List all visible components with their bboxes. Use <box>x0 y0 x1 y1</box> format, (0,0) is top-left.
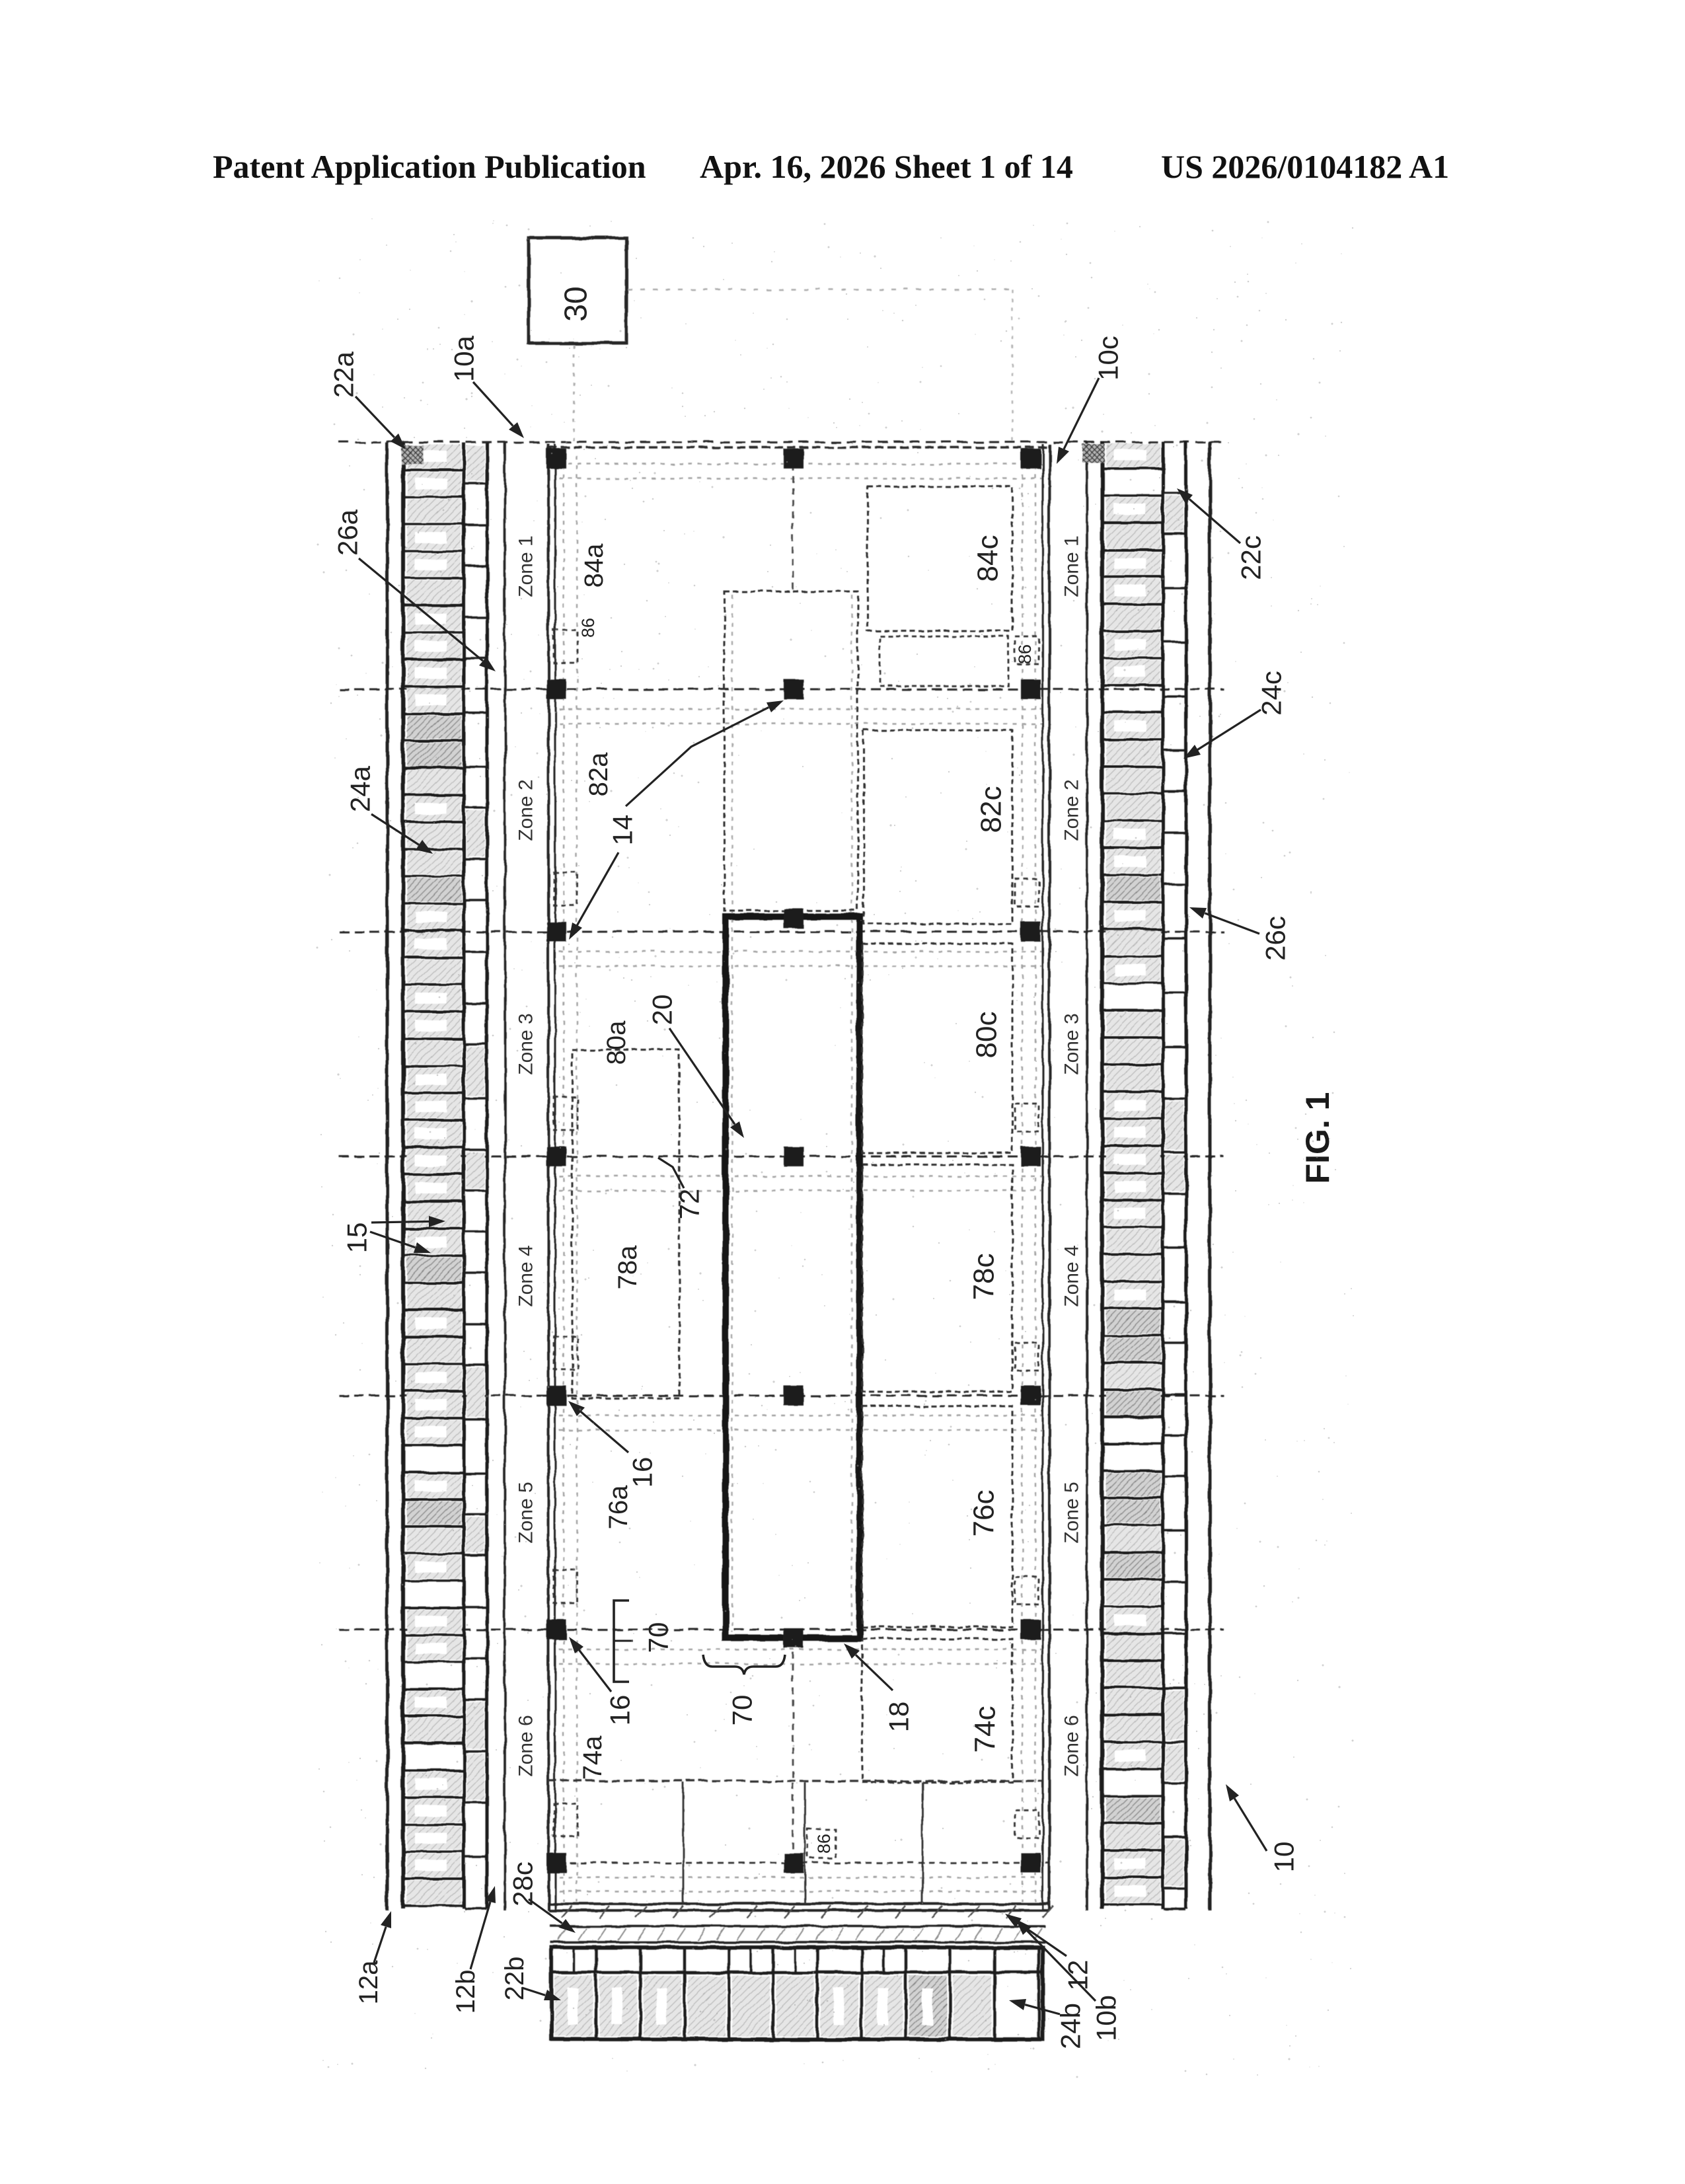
svg-text:Zone 6: Zone 6 <box>515 1715 537 1776</box>
svg-text:78a: 78a <box>613 1245 642 1289</box>
svg-text:80c: 80c <box>971 1012 1003 1059</box>
svg-text:84a: 84a <box>580 543 609 587</box>
svg-text:80a: 80a <box>602 1020 631 1065</box>
svg-text:14: 14 <box>607 815 638 846</box>
svg-text:84c: 84c <box>972 535 1004 582</box>
svg-text:10b: 10b <box>1091 1995 1122 2041</box>
svg-text:Zone 1: Zone 1 <box>515 535 537 597</box>
svg-text:26a: 26a <box>332 509 363 556</box>
svg-text:12a: 12a <box>354 1960 383 2004</box>
svg-text:76a: 76a <box>604 1485 633 1529</box>
svg-text:Zone 1: Zone 1 <box>1061 535 1083 597</box>
svg-text:74a: 74a <box>578 1735 607 1780</box>
svg-text:18: 18 <box>883 1702 915 1733</box>
svg-text:30: 30 <box>559 286 594 321</box>
svg-text:15: 15 <box>342 1223 373 1254</box>
svg-text:24b: 24b <box>1055 2003 1086 2049</box>
svg-text:86: 86 <box>814 1834 834 1854</box>
svg-text:Zone 5: Zone 5 <box>515 1482 537 1543</box>
svg-text:74c: 74c <box>969 1706 1002 1753</box>
svg-text:86: 86 <box>1015 644 1035 664</box>
svg-text:22b: 22b <box>500 1957 529 2001</box>
svg-text:70: 70 <box>643 1622 674 1653</box>
svg-text:26c: 26c <box>1260 916 1291 961</box>
svg-text:16: 16 <box>627 1457 658 1488</box>
svg-text:70: 70 <box>727 1695 758 1726</box>
svg-text:FIG. 1: FIG. 1 <box>1299 1092 1336 1184</box>
svg-text:24c: 24c <box>1256 671 1287 716</box>
svg-text:86: 86 <box>578 618 598 638</box>
svg-text:10a: 10a <box>449 335 480 382</box>
svg-text:10: 10 <box>1269 1842 1300 1873</box>
svg-text:12: 12 <box>1063 1960 1094 1991</box>
svg-text:Zone 3: Zone 3 <box>515 1013 537 1074</box>
svg-text:24a: 24a <box>345 765 376 812</box>
svg-text:Zone 4: Zone 4 <box>1061 1245 1083 1306</box>
svg-text:Zone 5: Zone 5 <box>1061 1482 1083 1543</box>
svg-text:Patent Application Publication: Patent Application Publication <box>213 148 646 185</box>
svg-text:20: 20 <box>647 995 678 1026</box>
svg-text:Zone 3: Zone 3 <box>1061 1013 1083 1074</box>
svg-text:US 2026/0104182 A1: US 2026/0104182 A1 <box>1161 148 1449 185</box>
svg-text:82c: 82c <box>975 786 1008 833</box>
svg-text:72: 72 <box>674 1189 705 1220</box>
svg-text:82a: 82a <box>584 752 613 796</box>
svg-text:22c: 22c <box>1236 535 1267 580</box>
svg-text:Zone 2: Zone 2 <box>515 779 537 841</box>
svg-text:Zone 6: Zone 6 <box>1061 1715 1083 1776</box>
svg-text:76c: 76c <box>968 1490 1000 1537</box>
svg-text:Zone 4: Zone 4 <box>515 1245 537 1306</box>
svg-text:10c: 10c <box>1093 336 1124 381</box>
svg-text:28c: 28c <box>507 1862 539 1906</box>
svg-text:Zone 2: Zone 2 <box>1061 779 1083 841</box>
svg-text:12b: 12b <box>451 1970 480 2014</box>
svg-text:Apr. 16, 2026 Sheet 1 of 14: Apr. 16, 2026 Sheet 1 of 14 <box>700 148 1073 185</box>
svg-text:22a: 22a <box>328 351 359 398</box>
svg-text:16: 16 <box>605 1695 636 1726</box>
svg-text:78c: 78c <box>968 1254 1000 1300</box>
